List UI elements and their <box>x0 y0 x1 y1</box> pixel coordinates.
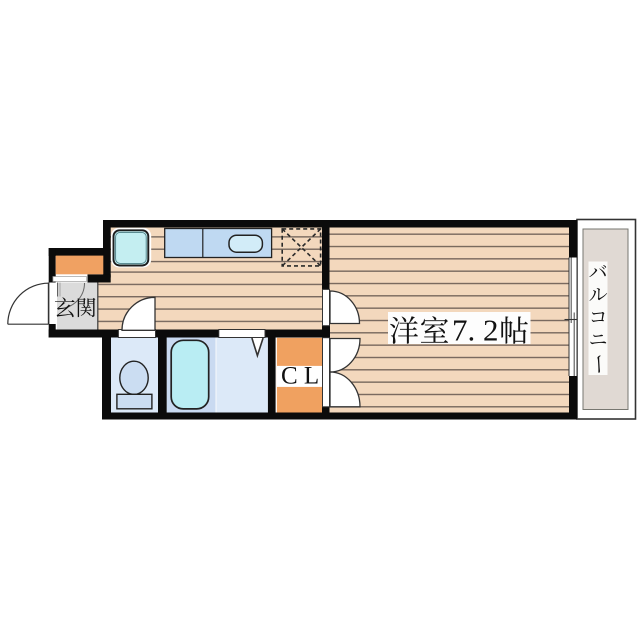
svg-text:7. 2: 7. 2 <box>452 313 499 348</box>
svg-text:C L: C L <box>281 363 319 390</box>
